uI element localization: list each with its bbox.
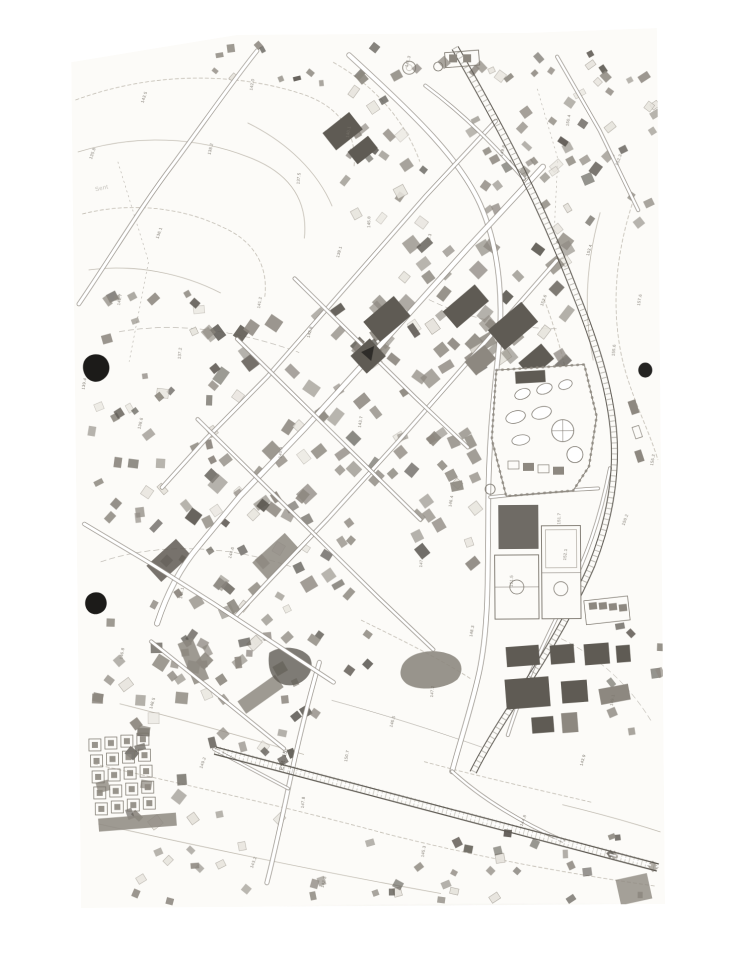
gridded-housing-block-building — [94, 758, 100, 764]
gridded-housing-block-building — [111, 772, 117, 778]
red-pen-smudge — [156, 919, 190, 926]
building — [175, 692, 188, 705]
gridded-housing-block-building — [125, 754, 131, 760]
spot-height-label: 145.8 — [366, 216, 371, 228]
building — [92, 694, 103, 704]
gridded-housing-block-building — [124, 738, 130, 744]
gridded-housing-block-building — [114, 804, 120, 810]
sports-hall — [498, 505, 538, 549]
building — [437, 896, 445, 903]
gridded-housing-block-building — [97, 790, 103, 796]
gasworks-shed — [553, 467, 564, 475]
building — [106, 618, 115, 626]
map-sheet-group: 143.5142.0138.2137.5136.1135.8141.7145.8… — [55, 18, 669, 927]
building — [135, 695, 146, 706]
school-building — [550, 644, 575, 665]
gridded-housing-block-building — [127, 770, 133, 776]
building — [87, 426, 96, 437]
black-ink-blot — [638, 363, 652, 378]
gasworks-building — [515, 370, 546, 384]
gridded-housing-block-building — [108, 740, 114, 746]
works-building — [449, 54, 457, 62]
school-building — [531, 716, 554, 734]
building — [156, 458, 166, 468]
building — [582, 867, 592, 876]
building — [177, 774, 187, 786]
building — [406, 20, 419, 33]
gridded-housing-block-building — [129, 786, 135, 792]
grandstand-unit — [619, 604, 628, 612]
building — [657, 643, 664, 651]
building — [319, 80, 324, 86]
building — [246, 650, 253, 657]
gridded-housing-block-building — [145, 784, 151, 790]
spot-height-label: 151.7 — [556, 512, 561, 524]
gridded-housing-block-building — [130, 802, 136, 808]
spot-height-label: 151.5 — [509, 575, 514, 587]
gridded-housing-block-building — [141, 752, 147, 758]
building — [281, 695, 289, 704]
scan-shadow — [278, 906, 628, 915]
gridded-housing-block-building — [95, 774, 101, 780]
football-field — [541, 526, 581, 619]
gridded-housing-block-building — [113, 788, 119, 794]
building — [206, 395, 212, 406]
gasworks-shed — [523, 463, 534, 471]
gridded-housing-block-building — [109, 756, 115, 762]
building — [128, 459, 139, 469]
grandstand-unit — [609, 603, 618, 611]
building — [113, 457, 122, 468]
building — [215, 810, 223, 818]
building — [563, 850, 569, 859]
gridded-housing-block-building — [146, 800, 152, 806]
gridded-housing-block-building — [143, 768, 149, 774]
gas-holder-tank — [567, 447, 583, 463]
school-building — [616, 645, 631, 663]
works-building — [463, 54, 471, 62]
grandstand-unit — [599, 602, 608, 610]
building — [234, 656, 242, 668]
school-building — [504, 676, 550, 709]
school-building — [584, 643, 611, 666]
grandstand-unit — [589, 602, 598, 610]
building — [148, 713, 159, 724]
school-building — [561, 680, 589, 704]
school-building — [506, 645, 540, 667]
school-building — [561, 712, 578, 733]
building — [227, 44, 236, 53]
building — [389, 889, 395, 896]
gridded-housing-block-building — [98, 806, 104, 812]
ink-speck — [112, 45, 120, 52]
gridded-housing-block-building — [92, 742, 98, 748]
building — [135, 512, 142, 523]
building — [628, 727, 636, 735]
gridded-housing-block-building — [140, 736, 146, 742]
building — [238, 841, 247, 851]
scanned-map-photo: 143.5142.0138.2137.5136.1135.8141.7145.8… — [0, 0, 742, 960]
map-canvas: 143.5142.0138.2137.5136.1135.8141.7145.8… — [0, 0, 742, 960]
building — [142, 373, 148, 379]
